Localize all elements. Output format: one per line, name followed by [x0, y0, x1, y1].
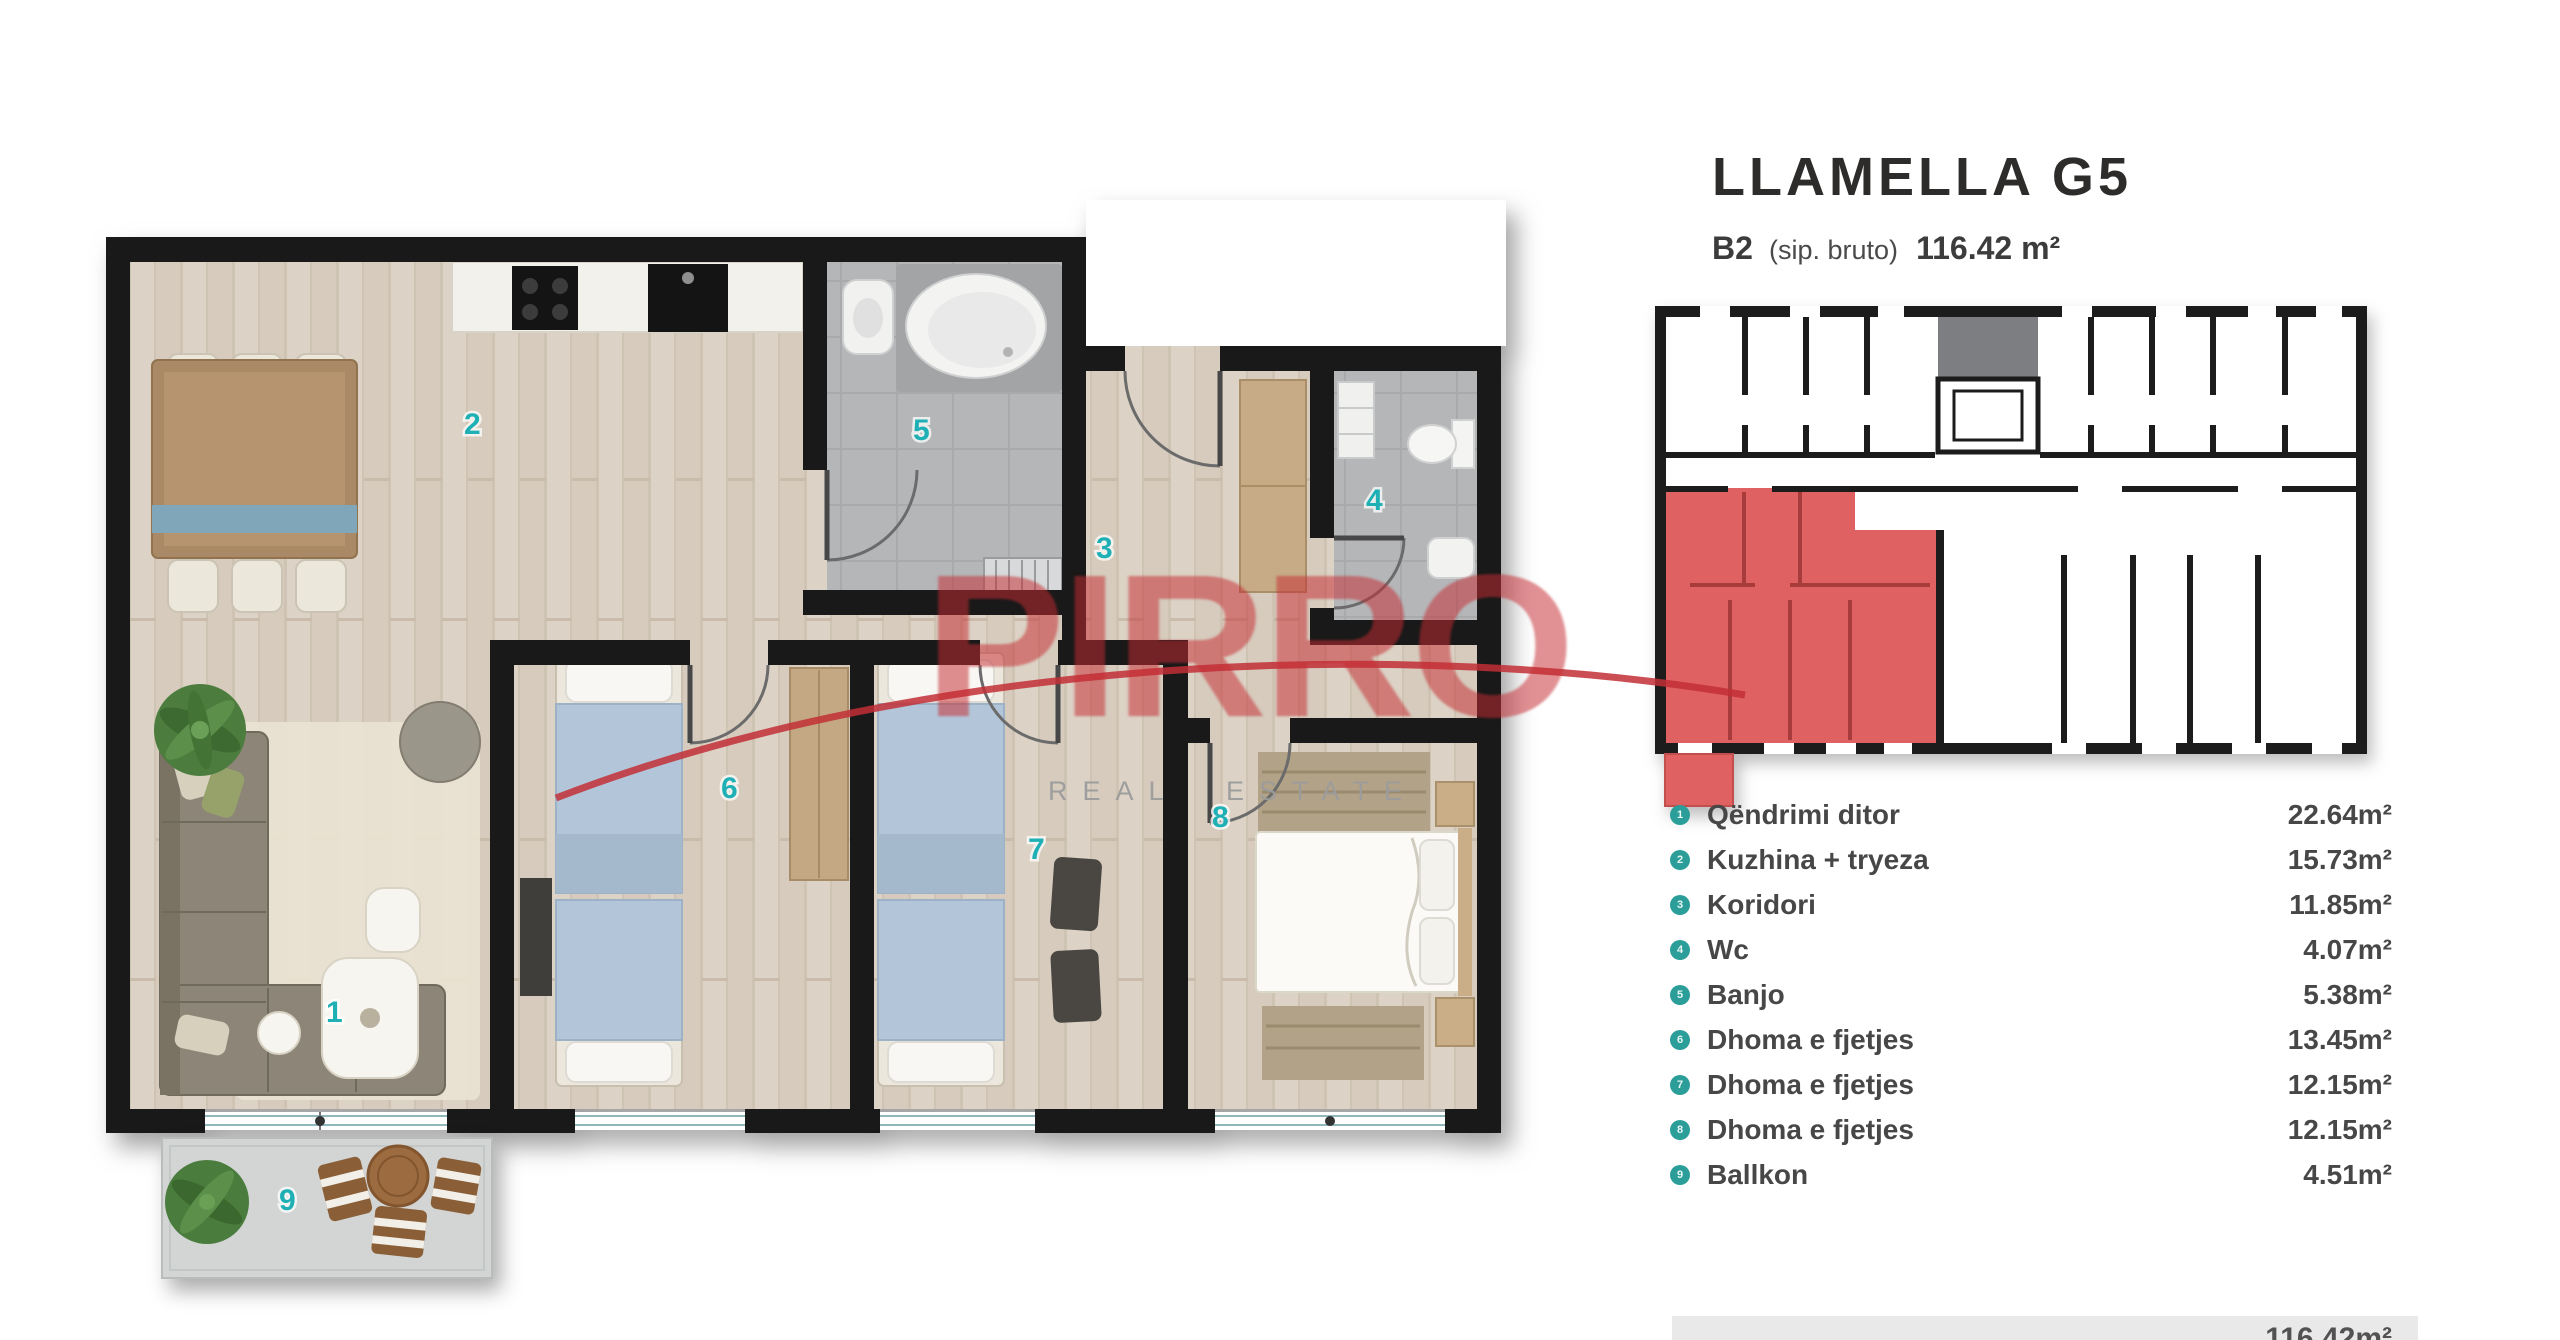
- room-area: 12.15m²: [2288, 1114, 2392, 1146]
- plan-label-7: 7: [1028, 833, 1045, 866]
- room-bullet: 5: [1670, 985, 1690, 1005]
- kitchen-counter: [452, 262, 803, 332]
- page: 1 2 3 4 5 6 7 8 9 PIRRO REAL ESTATE LLAM…: [0, 0, 2560, 1340]
- toilet: [1408, 425, 1456, 463]
- room-area: 15.73m²: [2288, 844, 2392, 876]
- room-area: 12.15m²: [2288, 1069, 2392, 1101]
- room-bullet: 4: [1670, 940, 1690, 960]
- room-name: Banjo: [1707, 979, 2303, 1011]
- room-bullet: 9: [1670, 1165, 1690, 1185]
- side-table: [366, 888, 420, 952]
- watermark-brand: PIRRO: [924, 544, 1570, 748]
- room-bullet: 7: [1670, 1075, 1690, 1095]
- balcony: [162, 1138, 492, 1278]
- room-area: 13.45m²: [2288, 1024, 2392, 1056]
- room-bullet: 1: [1670, 805, 1690, 825]
- unit-subtitle: B2 (sip. bruto) 116.42 m²: [1712, 230, 2132, 267]
- room-name: Koridori: [1707, 889, 2289, 921]
- unit-note: (sip. bruto): [1769, 235, 1898, 265]
- page-title: LLAMELLA G5: [1712, 150, 2132, 204]
- room-name: Qëndrimi ditor: [1707, 799, 2288, 831]
- plant-living: [154, 684, 246, 776]
- room-name: Wc: [1707, 934, 2303, 966]
- room-name: Dhoma e fjetjes: [1707, 1069, 2288, 1101]
- plan-label-6: 6: [721, 772, 738, 805]
- header: LLAMELLA G5 B2 (sip. bruto) 116.42 m²: [1712, 150, 2132, 267]
- room-name: Dhoma e fjetjes: [1707, 1024, 2288, 1056]
- pouf: [400, 702, 480, 782]
- total-area-value: 116.42m²: [2265, 1322, 2392, 1340]
- plan-label-2: 2: [464, 408, 481, 441]
- room-bullet: 8: [1670, 1120, 1690, 1140]
- room-list-row: 6 Dhoma e fjetjes 13.45m²: [1670, 1017, 2392, 1062]
- room-list-row: 1 Qëndrimi ditor 22.64m²: [1670, 792, 2392, 837]
- plan-label-9: 9: [279, 1184, 296, 1217]
- plan-label-1: 1: [326, 996, 343, 1029]
- small-table: [258, 1012, 300, 1054]
- room-list-row: 9 Ballkon 4.51m²: [1670, 1152, 2392, 1197]
- room-bullet: 6: [1670, 1030, 1690, 1050]
- room-name: Dhoma e fjetjes: [1707, 1114, 2288, 1146]
- unit-code: B2: [1712, 230, 1753, 266]
- room-list: 1 Qëndrimi ditor 22.64m² 2 Kuzhina + try…: [1670, 792, 2392, 1197]
- plan-label-5: 5: [913, 414, 930, 447]
- keyplan-stair-core: [1938, 317, 2038, 452]
- total-area-bar: 116.42m²: [1672, 1316, 2418, 1340]
- balcony-sliding-door: [205, 1112, 447, 1130]
- unit-area: 116.42 m²: [1916, 230, 2060, 266]
- dining-set: [152, 354, 357, 612]
- room-list-row: 4 Wc 4.07m²: [1670, 927, 2392, 972]
- room-bullet: 3: [1670, 895, 1690, 915]
- room-list-row: 7 Dhoma e fjetjes 12.15m²: [1670, 1062, 2392, 1107]
- plant-balcony: [165, 1160, 249, 1244]
- room-area: 11.85m²: [2289, 889, 2392, 921]
- plan-label-4: 4: [1366, 484, 1383, 517]
- room-name: Ballkon: [1707, 1159, 2303, 1191]
- room-list-row: 3 Koridori 11.85m²: [1670, 882, 2392, 927]
- room-area: 4.51m²: [2303, 1159, 2392, 1191]
- room-list-row: 2 Kuzhina + tryeza 15.73m²: [1670, 837, 2392, 882]
- watermark-tagline: REAL ESTATE: [1048, 776, 1417, 807]
- room-list-row: 8 Dhoma e fjetjes 12.15m²: [1670, 1107, 2392, 1152]
- room-area: 5.38m²: [2303, 979, 2392, 1011]
- keyplan: [1655, 306, 2367, 806]
- room-name: Kuzhina + tryeza: [1707, 844, 2288, 876]
- room-area: 4.07m²: [2303, 934, 2392, 966]
- room-area: 22.64m²: [2288, 799, 2392, 831]
- room-bullet: 2: [1670, 850, 1690, 870]
- room-list-row: 5 Banjo 5.38m²: [1670, 972, 2392, 1017]
